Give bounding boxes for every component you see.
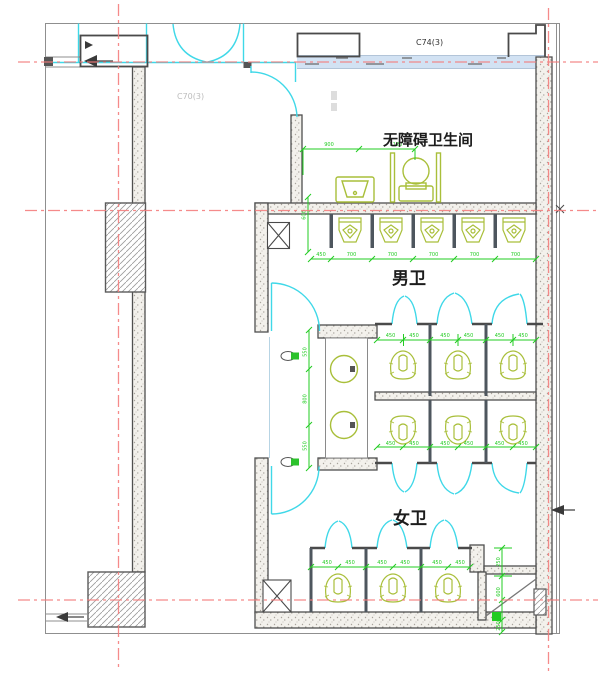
- hand-dryer: [281, 352, 299, 361]
- double-door-leaf-right: [208, 24, 241, 62]
- svg-text:450: 450: [518, 333, 528, 339]
- floor-drain: [492, 612, 501, 621]
- svg-text:700: 700: [347, 252, 357, 258]
- svg-text:450: 450: [440, 333, 450, 339]
- floor-plan-svg: 900 1120 600 450 700 700 700 700 700 450…: [0, 0, 600, 677]
- svg-text:700: 700: [388, 252, 398, 258]
- svg-text:450: 450: [518, 441, 528, 447]
- svg-text:700: 700: [470, 252, 480, 258]
- wall-tab-right: [509, 25, 546, 57]
- svg-text:450: 450: [400, 560, 410, 566]
- toilet: [379, 574, 407, 602]
- column-hatched-left: [106, 203, 146, 292]
- toilet: [389, 416, 417, 444]
- urinal: [380, 218, 402, 242]
- urinal: [503, 218, 525, 242]
- svg-text:450: 450: [464, 333, 474, 339]
- svg-text:450: 450: [440, 441, 450, 447]
- svg-text:450: 450: [432, 560, 442, 566]
- toilet: [389, 351, 417, 379]
- toilet: [444, 351, 472, 379]
- svg-text:700: 700: [429, 252, 439, 258]
- svg-text:450: 450: [455, 560, 465, 566]
- mens-restroom-label: 男卫: [392, 269, 426, 289]
- cad-floor-plan: 900 1120 600 450 700 700 700 700 700 450…: [0, 0, 600, 677]
- svg-text:450: 450: [409, 441, 419, 447]
- accessible-sink: [336, 177, 374, 202]
- svg-text:450: 450: [495, 333, 505, 339]
- right-exterior-wall: [536, 57, 552, 634]
- stall-mid-wall: [375, 392, 536, 400]
- window-tag-top: C74(3): [416, 38, 443, 47]
- svg-text:450: 450: [409, 333, 419, 339]
- svg-text:550: 550: [303, 347, 309, 357]
- svg-text:450: 450: [464, 441, 474, 447]
- window-tag-left: C70(3): [177, 92, 204, 101]
- dim-label: 900: [324, 142, 334, 148]
- svg-text:450: 450: [345, 560, 355, 566]
- svg-text:600: 600: [496, 587, 502, 597]
- urinal: [339, 218, 361, 242]
- svg-text:550: 550: [303, 441, 309, 451]
- svg-text:250: 250: [496, 621, 502, 631]
- urinal: [421, 218, 443, 242]
- hand-dryer: [281, 458, 299, 467]
- svg-text:450: 450: [316, 252, 326, 258]
- svg-text:450: 450: [322, 560, 332, 566]
- fixtures: [281, 153, 527, 621]
- toilet: [444, 416, 472, 444]
- entry-arrow-icon: [84, 55, 97, 67]
- left-interior-wall: [133, 67, 146, 572]
- svg-text:450: 450: [495, 441, 505, 447]
- shaft-diagonal: [486, 579, 536, 616]
- svg-text:450: 450: [386, 441, 396, 447]
- dim-label: 600: [302, 210, 308, 220]
- svg-text:700: 700: [511, 252, 521, 258]
- wall-tab-left: [298, 34, 360, 57]
- svg-text:250: 250: [496, 557, 502, 567]
- accessible-toilet: [391, 153, 441, 202]
- toilet: [499, 416, 527, 444]
- toilet: [324, 574, 352, 602]
- mens-north-wall: [255, 203, 536, 214]
- womens-restroom-label: 女卫: [393, 508, 427, 529]
- break-arrow-right-icon: [551, 505, 564, 515]
- urinal: [462, 218, 484, 242]
- mens-entry-door-swing: [272, 283, 320, 331]
- svg-text:450: 450: [377, 560, 387, 566]
- svg-text:450: 450: [386, 333, 396, 339]
- toilet: [434, 574, 462, 602]
- double-door-leaf-left: [173, 24, 207, 62]
- accessible-restroom-label: 无障碍卫生间: [382, 131, 473, 149]
- accessible-door-swing: [251, 72, 297, 117]
- west-wall-upper: [255, 203, 268, 332]
- accessible-wc-wall: [291, 115, 302, 204]
- toilet: [499, 351, 527, 379]
- womens-entry-door-swing: [272, 467, 320, 515]
- svg-text:800: 800: [303, 394, 309, 404]
